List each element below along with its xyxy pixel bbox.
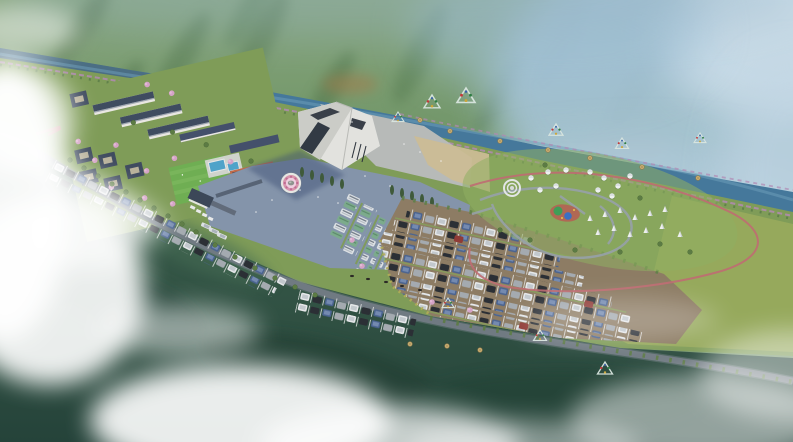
thatched-hut (588, 156, 593, 161)
autumn-patch (322, 74, 378, 94)
aerial-rendering-stage (0, 0, 793, 442)
dome-tent (601, 175, 606, 181)
dome-tent (595, 187, 600, 193)
flower-emblem-plaza (281, 173, 302, 194)
site-aerial-rendering (0, 0, 793, 442)
dome-tent (563, 167, 568, 173)
thatched-hut (418, 118, 423, 123)
dome-tent (609, 193, 614, 199)
dome-tent (553, 183, 558, 189)
dome-tent (627, 173, 632, 179)
thatched-hut (498, 139, 503, 144)
dome-tent (537, 187, 542, 193)
mist (520, 298, 720, 342)
dome-tent (615, 183, 620, 189)
dome-tent (587, 169, 592, 175)
dome-tent (528, 175, 533, 181)
thatched-hut (640, 165, 645, 170)
thatched-hut (546, 148, 551, 153)
dome-tent (545, 169, 550, 175)
thatched-hut (448, 129, 453, 134)
mist (100, 305, 260, 355)
thatched-hut (696, 176, 701, 181)
thatched-hut (445, 344, 450, 349)
thatched-hut (478, 348, 483, 353)
thatched-hut (408, 342, 413, 347)
